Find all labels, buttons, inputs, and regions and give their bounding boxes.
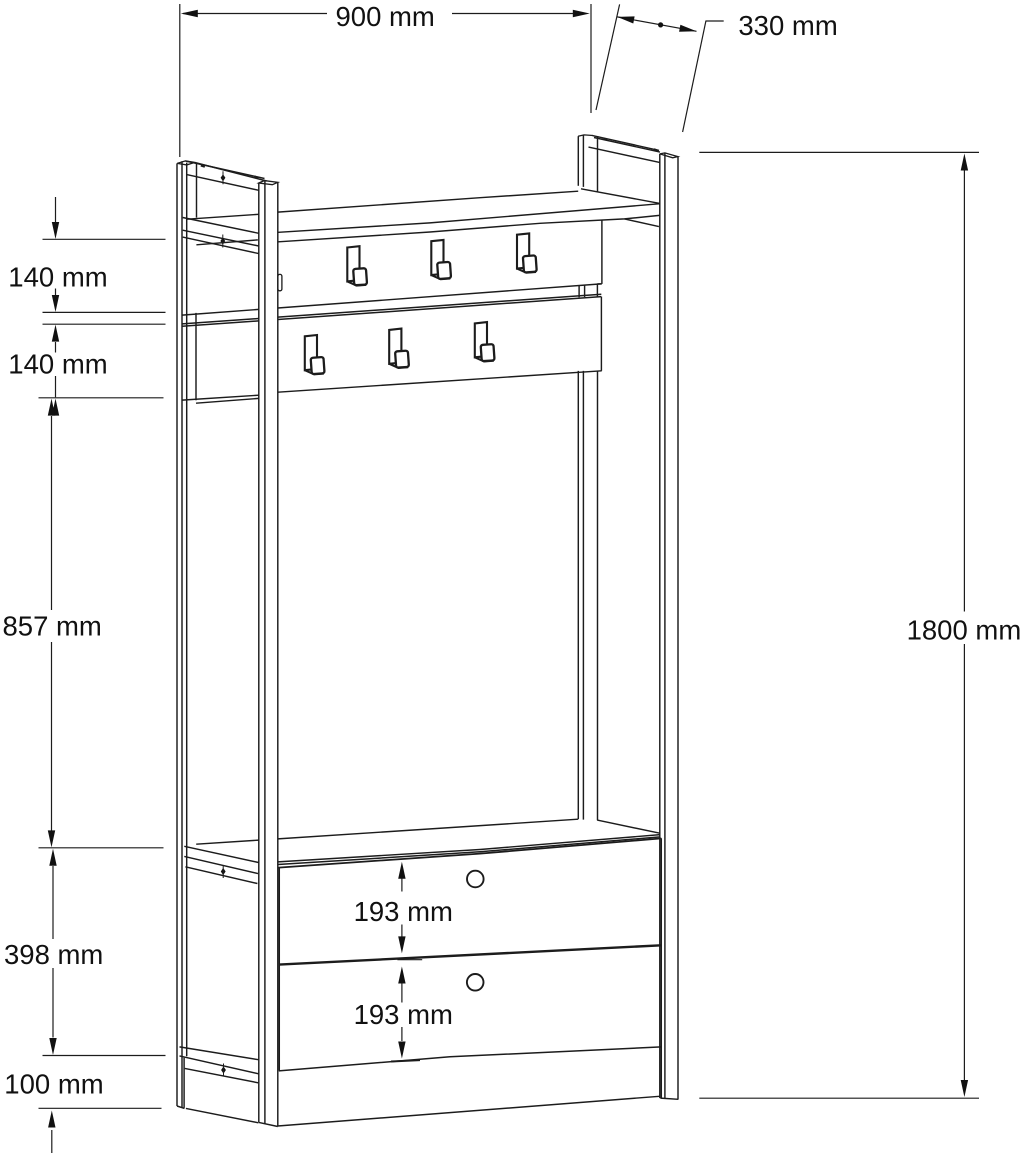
svg-text:140 mm: 140 mm xyxy=(8,261,107,292)
svg-text:330 mm: 330 mm xyxy=(738,10,837,41)
svg-text:900 mm: 900 mm xyxy=(336,1,435,32)
svg-text:193 mm: 193 mm xyxy=(354,896,453,927)
svg-text:398 mm: 398 mm xyxy=(4,939,103,970)
svg-text:140 mm: 140 mm xyxy=(8,349,107,380)
svg-text:857 mm: 857 mm xyxy=(3,611,102,642)
svg-text:100 mm: 100 mm xyxy=(4,1069,103,1100)
svg-text:1800 mm: 1800 mm xyxy=(907,615,1022,646)
svg-text:193 mm: 193 mm xyxy=(354,999,453,1030)
